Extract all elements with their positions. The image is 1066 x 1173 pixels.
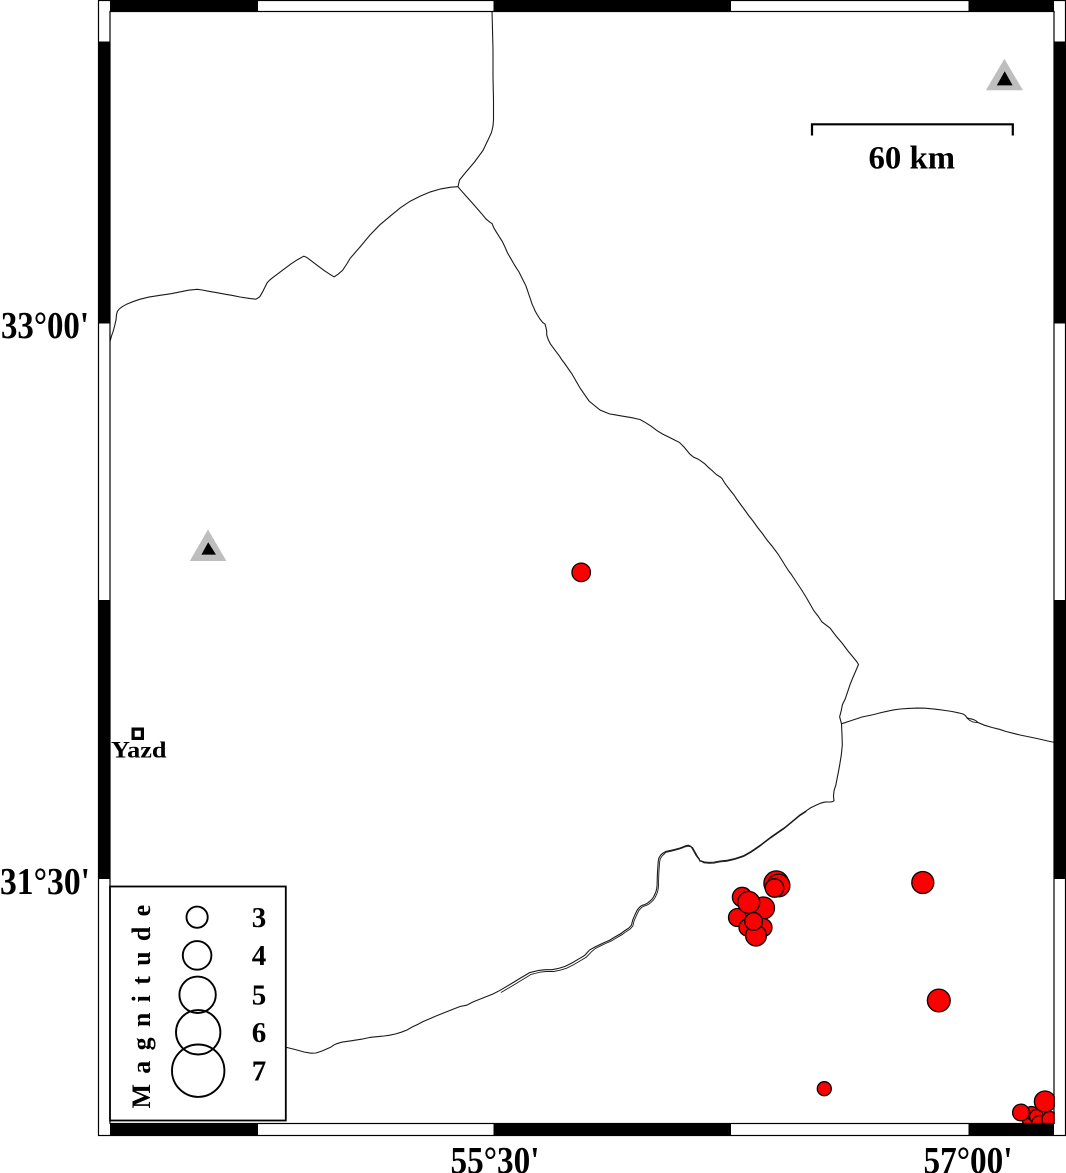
svg-text:33°00': 33°00' — [1, 305, 89, 347]
svg-text:6: 6 — [252, 1017, 267, 1049]
svg-text:57°00': 57°00' — [924, 1140, 1013, 1173]
svg-text:31°30': 31°30' — [0, 861, 90, 903]
svg-text:7: 7 — [252, 1055, 267, 1087]
svg-text:55°30': 55°30' — [451, 1140, 540, 1173]
svg-text:Magnitude: Magnitude — [127, 894, 156, 1108]
svg-text:60 km: 60 km — [869, 141, 956, 177]
svg-text:Yazd: Yazd — [111, 738, 167, 763]
svg-text:3: 3 — [252, 902, 267, 934]
svg-text:4: 4 — [252, 940, 267, 972]
svg-text:5: 5 — [252, 979, 267, 1011]
